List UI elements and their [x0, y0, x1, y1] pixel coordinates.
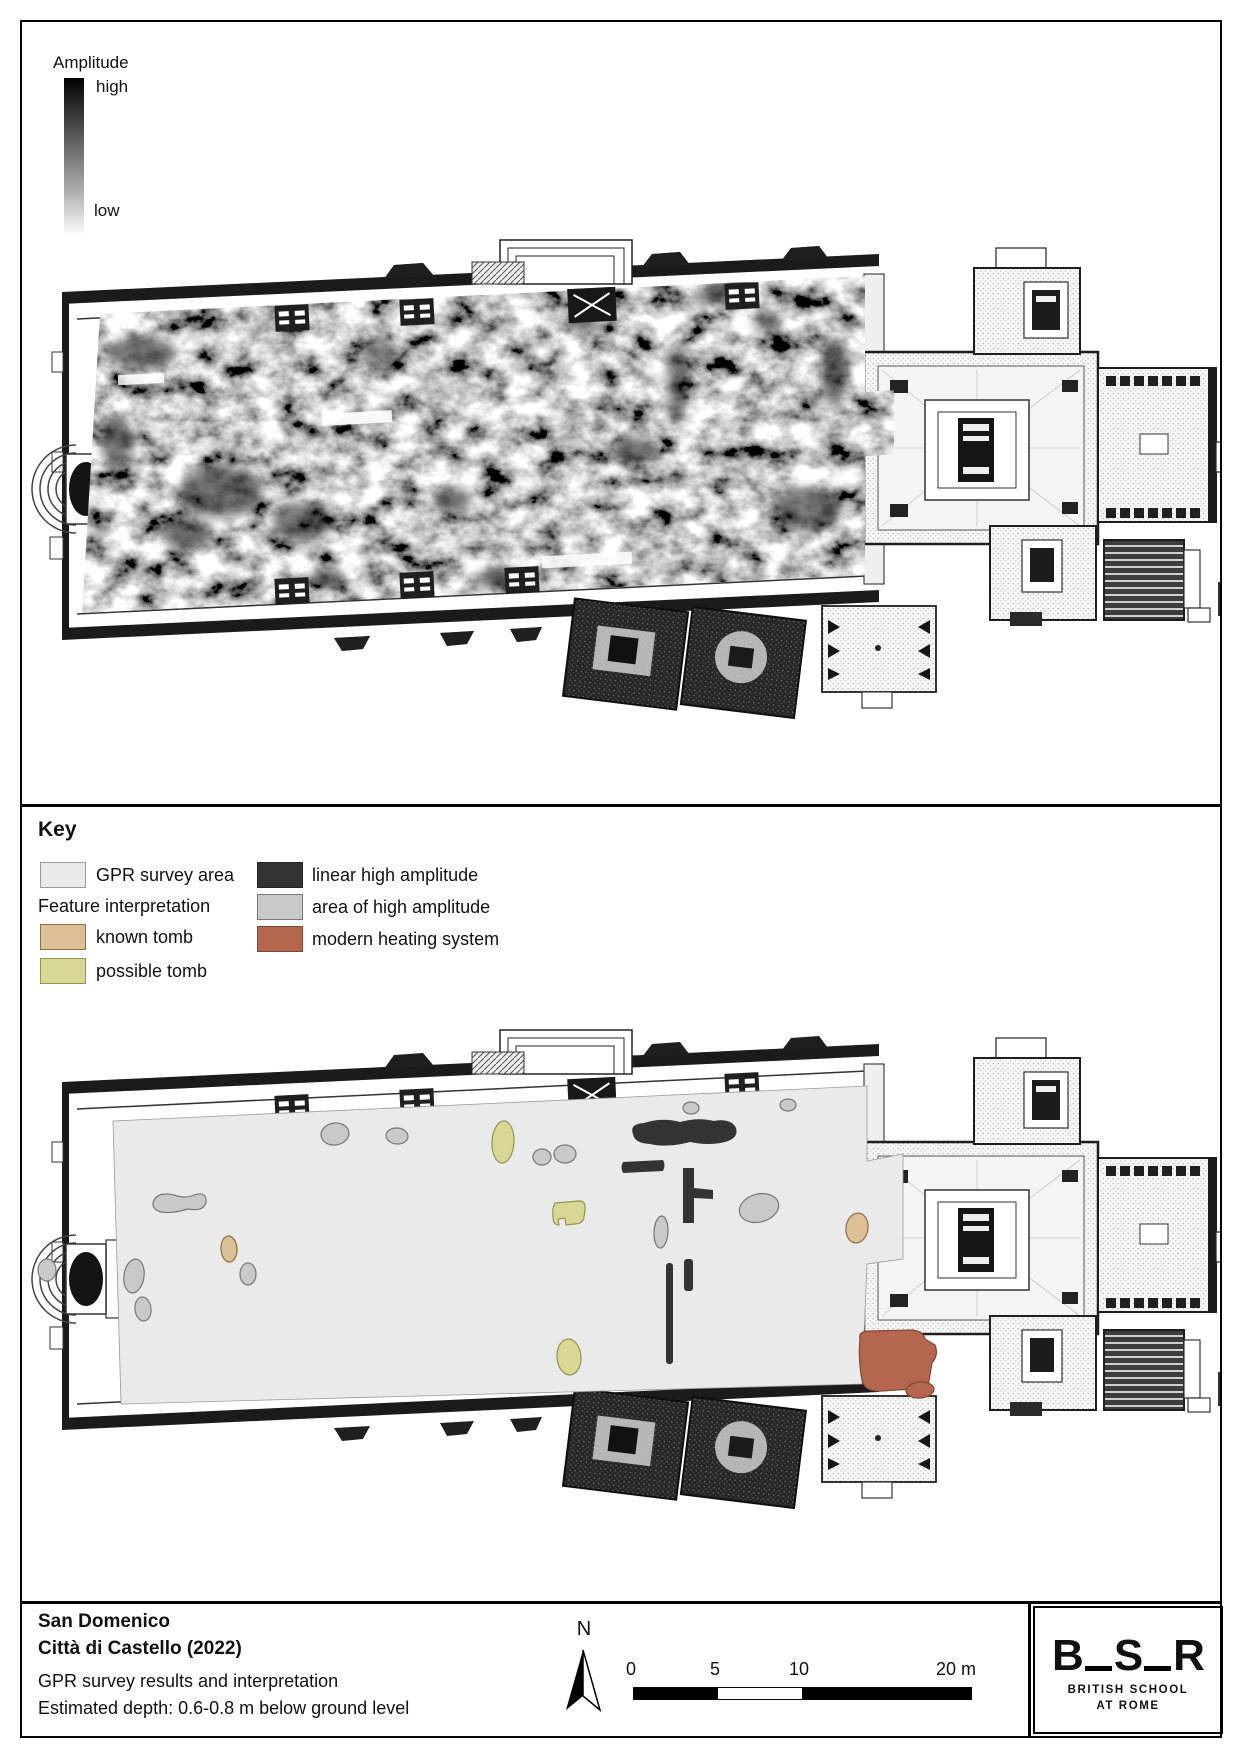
title-site: San Domenico	[38, 1612, 170, 1633]
scale-end-label: 20 m	[936, 1660, 976, 1680]
scale-tick-10: 10	[789, 1660, 809, 1680]
panel-divider-top	[20, 804, 1222, 807]
bsr-logo: B S R BRITISH SCHOOL AT ROME	[1035, 1636, 1221, 1715]
scale-bar	[633, 1687, 972, 1700]
figure-page: Amplitude high low Key GPR survey area F…	[0, 0, 1241, 1755]
scale-tick-5: 5	[710, 1660, 720, 1680]
bsr-at-rome-text: AT ROME	[1035, 1698, 1221, 1715]
title-place-year: Città di Castello (2022)	[38, 1639, 242, 1660]
north-label: N	[572, 1618, 596, 1640]
titleblock-divider	[1028, 1601, 1031, 1738]
bsr-dash-1	[1085, 1666, 1112, 1671]
title-depth-note: Estimated depth: 0.6-0.8 m below ground …	[38, 1699, 409, 1719]
bsr-school-text: BRITISH SCHOOL	[1035, 1682, 1221, 1699]
bsr-letter-r: R	[1173, 1636, 1204, 1676]
scale-seg-2	[718, 1688, 802, 1699]
north-arrow-icon	[556, 1648, 610, 1718]
figure-outer-border	[20, 20, 1222, 1738]
bsr-letter-s: S	[1114, 1636, 1142, 1676]
bsr-letter-b: B	[1052, 1636, 1083, 1676]
panel-divider-bottom	[20, 1601, 1222, 1604]
title-survey-type: GPR survey results and interpretation	[38, 1672, 338, 1692]
scale-seg-3	[802, 1688, 971, 1699]
bsr-dash-2	[1144, 1666, 1171, 1671]
scale-tick-0: 0	[626, 1660, 636, 1680]
bsr-logo-box: B S R BRITISH SCHOOL AT ROME	[1033, 1606, 1223, 1734]
scale-seg-1	[634, 1688, 718, 1699]
